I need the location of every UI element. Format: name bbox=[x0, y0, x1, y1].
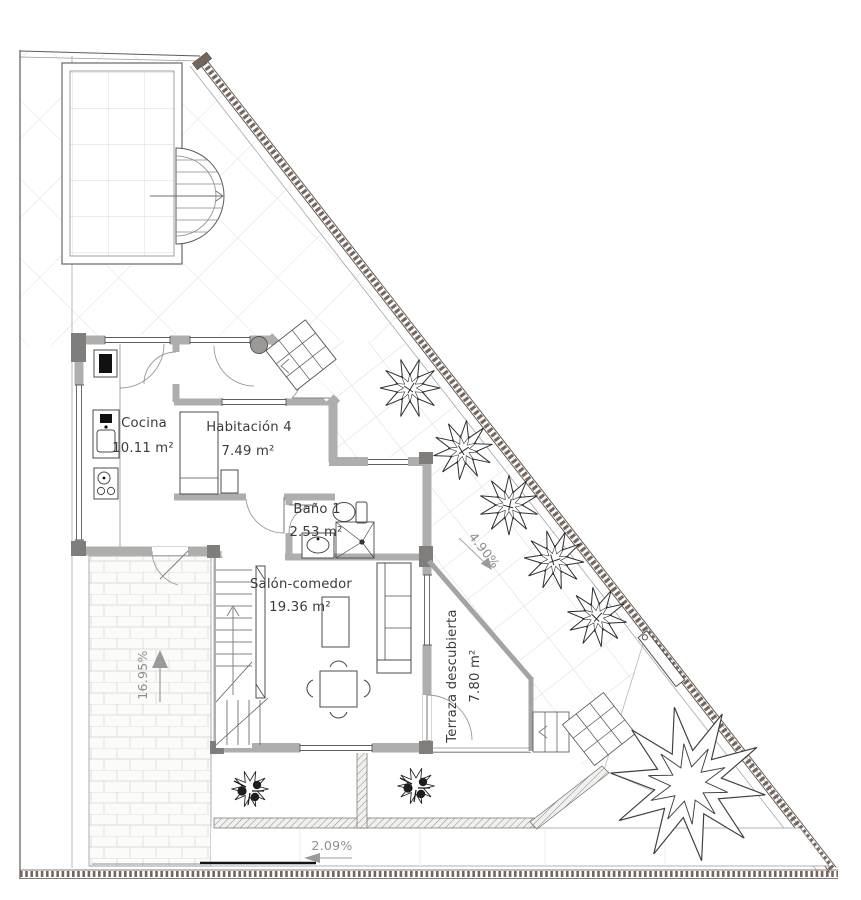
window-kitchen-left bbox=[74, 385, 84, 540]
room-label-cocina: Cocina bbox=[121, 416, 167, 431]
room-label-salon: Salón-comedor bbox=[250, 576, 352, 592]
room-label-bano1: Baño 1 bbox=[293, 502, 340, 517]
planters bbox=[214, 752, 609, 829]
nightstand bbox=[221, 470, 238, 493]
window-hall-top bbox=[190, 335, 250, 345]
window-bath-top bbox=[368, 457, 408, 467]
room-area-habitacion4: 7.49 m² bbox=[221, 444, 274, 459]
room-area-terraza: 7.80 m² bbox=[468, 649, 483, 702]
fence-bottom bbox=[20, 870, 838, 879]
window-salon-bottom bbox=[300, 743, 372, 753]
floor-plan-sheet: 16.95% 2.09% bbox=[0, 0, 861, 900]
sofa bbox=[377, 563, 411, 673]
room-area-salon: 19.36 m² bbox=[269, 600, 331, 615]
ramp: 16.95% bbox=[89, 556, 211, 866]
floor-plan-svg: 16.95% 2.09% bbox=[0, 0, 861, 900]
slope-label-ramp: 16.95% bbox=[135, 650, 150, 699]
oven-icon bbox=[94, 350, 117, 377]
room-area-bano1: 2.53 m² bbox=[289, 525, 342, 540]
window-kitchen-top-1 bbox=[105, 335, 170, 345]
dining-table bbox=[320, 671, 357, 707]
room-label-habitacion4: Habitación 4 bbox=[206, 419, 292, 435]
planter-wall-bottom bbox=[214, 818, 534, 828]
stove-icon bbox=[94, 468, 118, 499]
room-area-cocina: 10.11 m² bbox=[112, 441, 174, 456]
planter-wall-divider bbox=[357, 752, 367, 828]
window-salon-right bbox=[422, 575, 432, 645]
window-habitacion4 bbox=[222, 397, 286, 407]
room-label-terraza: Terraza descubierta bbox=[445, 609, 460, 743]
column bbox=[251, 337, 268, 354]
slope-label-walkway: 2.09% bbox=[311, 838, 352, 853]
